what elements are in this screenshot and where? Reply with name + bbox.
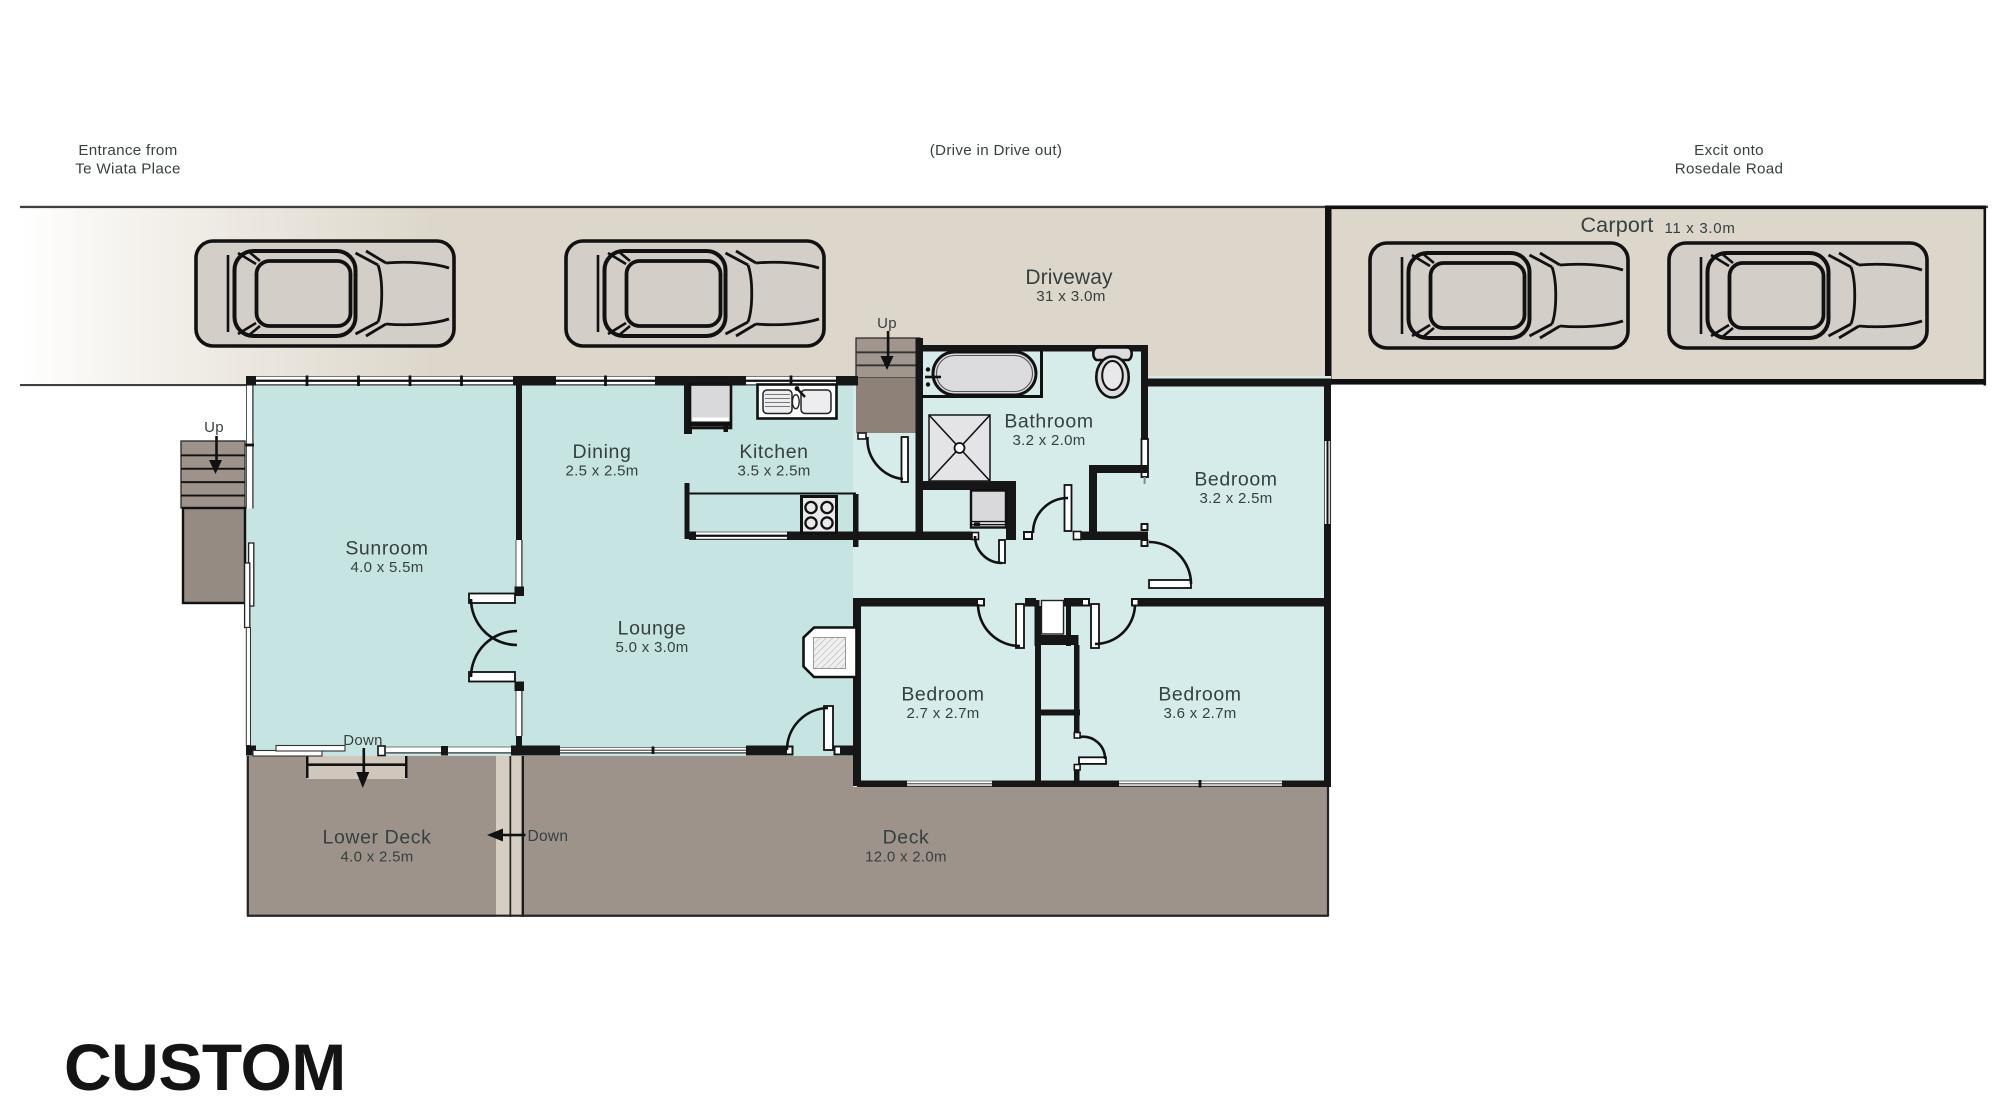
svg-text:Dining: Dining [573, 441, 632, 463]
svg-text:Lounge: Lounge [618, 618, 687, 640]
svg-text:Down: Down [528, 828, 569, 845]
svg-text:5.0 x 3.0m: 5.0 x 3.0m [615, 639, 688, 656]
svg-text:3.6 x 2.7m: 3.6 x 2.7m [1163, 705, 1236, 722]
svg-text:Up: Up [877, 315, 897, 332]
svg-text:Entrance from: Entrance from [78, 142, 177, 159]
svg-text:3.2 x 2.5m: 3.2 x 2.5m [1199, 490, 1272, 507]
svg-text:Deck: Deck [883, 827, 930, 849]
svg-text:Bedroom: Bedroom [901, 684, 984, 706]
svg-text:3.5 x 2.5m: 3.5 x 2.5m [737, 463, 810, 480]
svg-text:Down: Down [343, 732, 383, 749]
svg-text:12.0 x 2.0m: 12.0 x 2.0m [865, 849, 947, 866]
svg-text:Excit onto: Excit onto [1694, 142, 1764, 159]
svg-text:11 x 3.0m: 11 x 3.0m [1664, 220, 1735, 237]
svg-text:Up: Up [204, 419, 224, 436]
svg-text:Lower Deck: Lower Deck [323, 827, 432, 849]
svg-text:(Drive in Drive out): (Drive in Drive out) [930, 142, 1063, 159]
svg-text:4.0 x 5.5m: 4.0 x 5.5m [350, 559, 423, 576]
svg-text:4.0 x 2.5m: 4.0 x 2.5m [340, 849, 413, 866]
svg-text:Driveway: Driveway [1025, 266, 1113, 289]
svg-text:Bedroom: Bedroom [1158, 684, 1241, 706]
svg-text:3.2 x 2.0m: 3.2 x 2.0m [1012, 432, 1085, 449]
svg-text:Bathroom: Bathroom [1004, 411, 1093, 433]
svg-text:Rosedale Road: Rosedale Road [1675, 161, 1784, 178]
svg-text:Te Wiata Place: Te Wiata Place [75, 161, 181, 178]
svg-text:Sunroom: Sunroom [345, 538, 428, 560]
svg-text:Carport: Carport [1580, 213, 1653, 237]
svg-text:Bedroom: Bedroom [1194, 469, 1277, 491]
svg-text:2.5 x 2.5m: 2.5 x 2.5m [565, 463, 638, 480]
svg-text:CUSTOM: CUSTOM [64, 1030, 346, 1099]
svg-text:2.7 x 2.7m: 2.7 x 2.7m [906, 705, 979, 722]
svg-text:31 x 3.0m: 31 x 3.0m [1036, 288, 1105, 305]
svg-text:Kitchen: Kitchen [739, 441, 808, 463]
